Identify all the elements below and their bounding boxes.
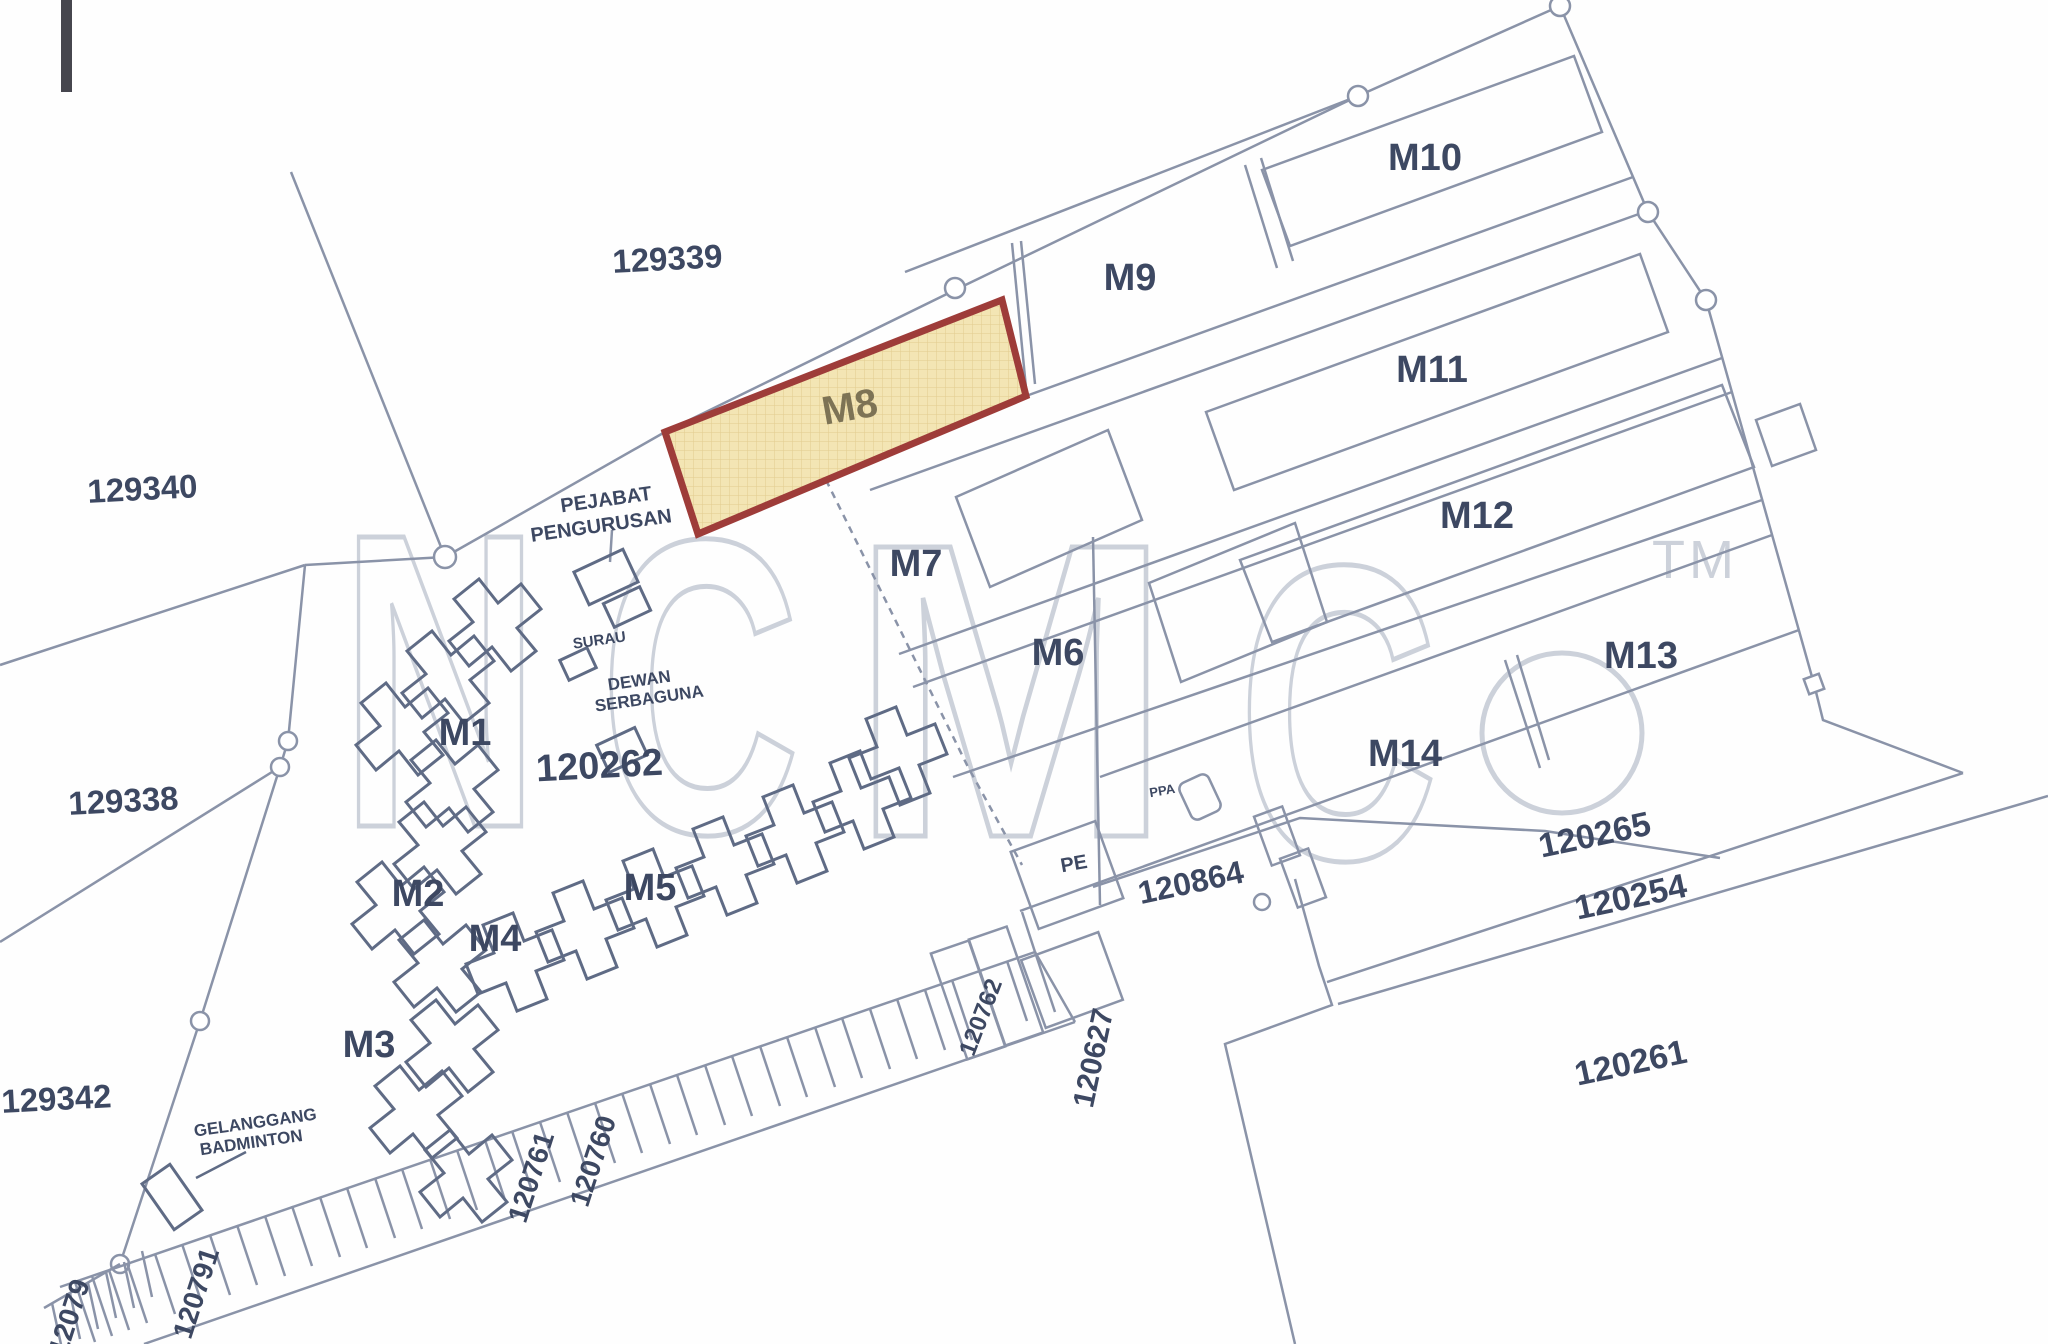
svg-text:TM: TM bbox=[1652, 530, 1738, 590]
svg-text:M11: M11 bbox=[1396, 349, 1468, 391]
svg-text:129342: 129342 bbox=[0, 1077, 112, 1120]
svg-text:N: N bbox=[340, 447, 540, 916]
svg-text:M10: M10 bbox=[1388, 137, 1462, 179]
svg-text:120262: 120262 bbox=[535, 742, 664, 791]
svg-text:M5: M5 bbox=[624, 867, 677, 909]
svg-text:M9: M9 bbox=[1104, 257, 1157, 299]
svg-text:PE: PE bbox=[1059, 851, 1089, 877]
svg-text:M7: M7 bbox=[890, 543, 943, 585]
svg-text:129340: 129340 bbox=[86, 467, 198, 510]
svg-text:129339: 129339 bbox=[611, 237, 723, 280]
svg-text:M1: M1 bbox=[439, 712, 492, 754]
svg-text:M14: M14 bbox=[1368, 733, 1442, 775]
svg-text:M2: M2 bbox=[392, 873, 445, 915]
svg-text:M4: M4 bbox=[469, 918, 522, 960]
svg-text:M13: M13 bbox=[1604, 635, 1678, 677]
svg-text:M6: M6 bbox=[1032, 632, 1085, 674]
svg-text:129338: 129338 bbox=[67, 779, 179, 822]
svg-text:M12: M12 bbox=[1440, 495, 1514, 537]
svg-text:M3: M3 bbox=[343, 1024, 396, 1066]
